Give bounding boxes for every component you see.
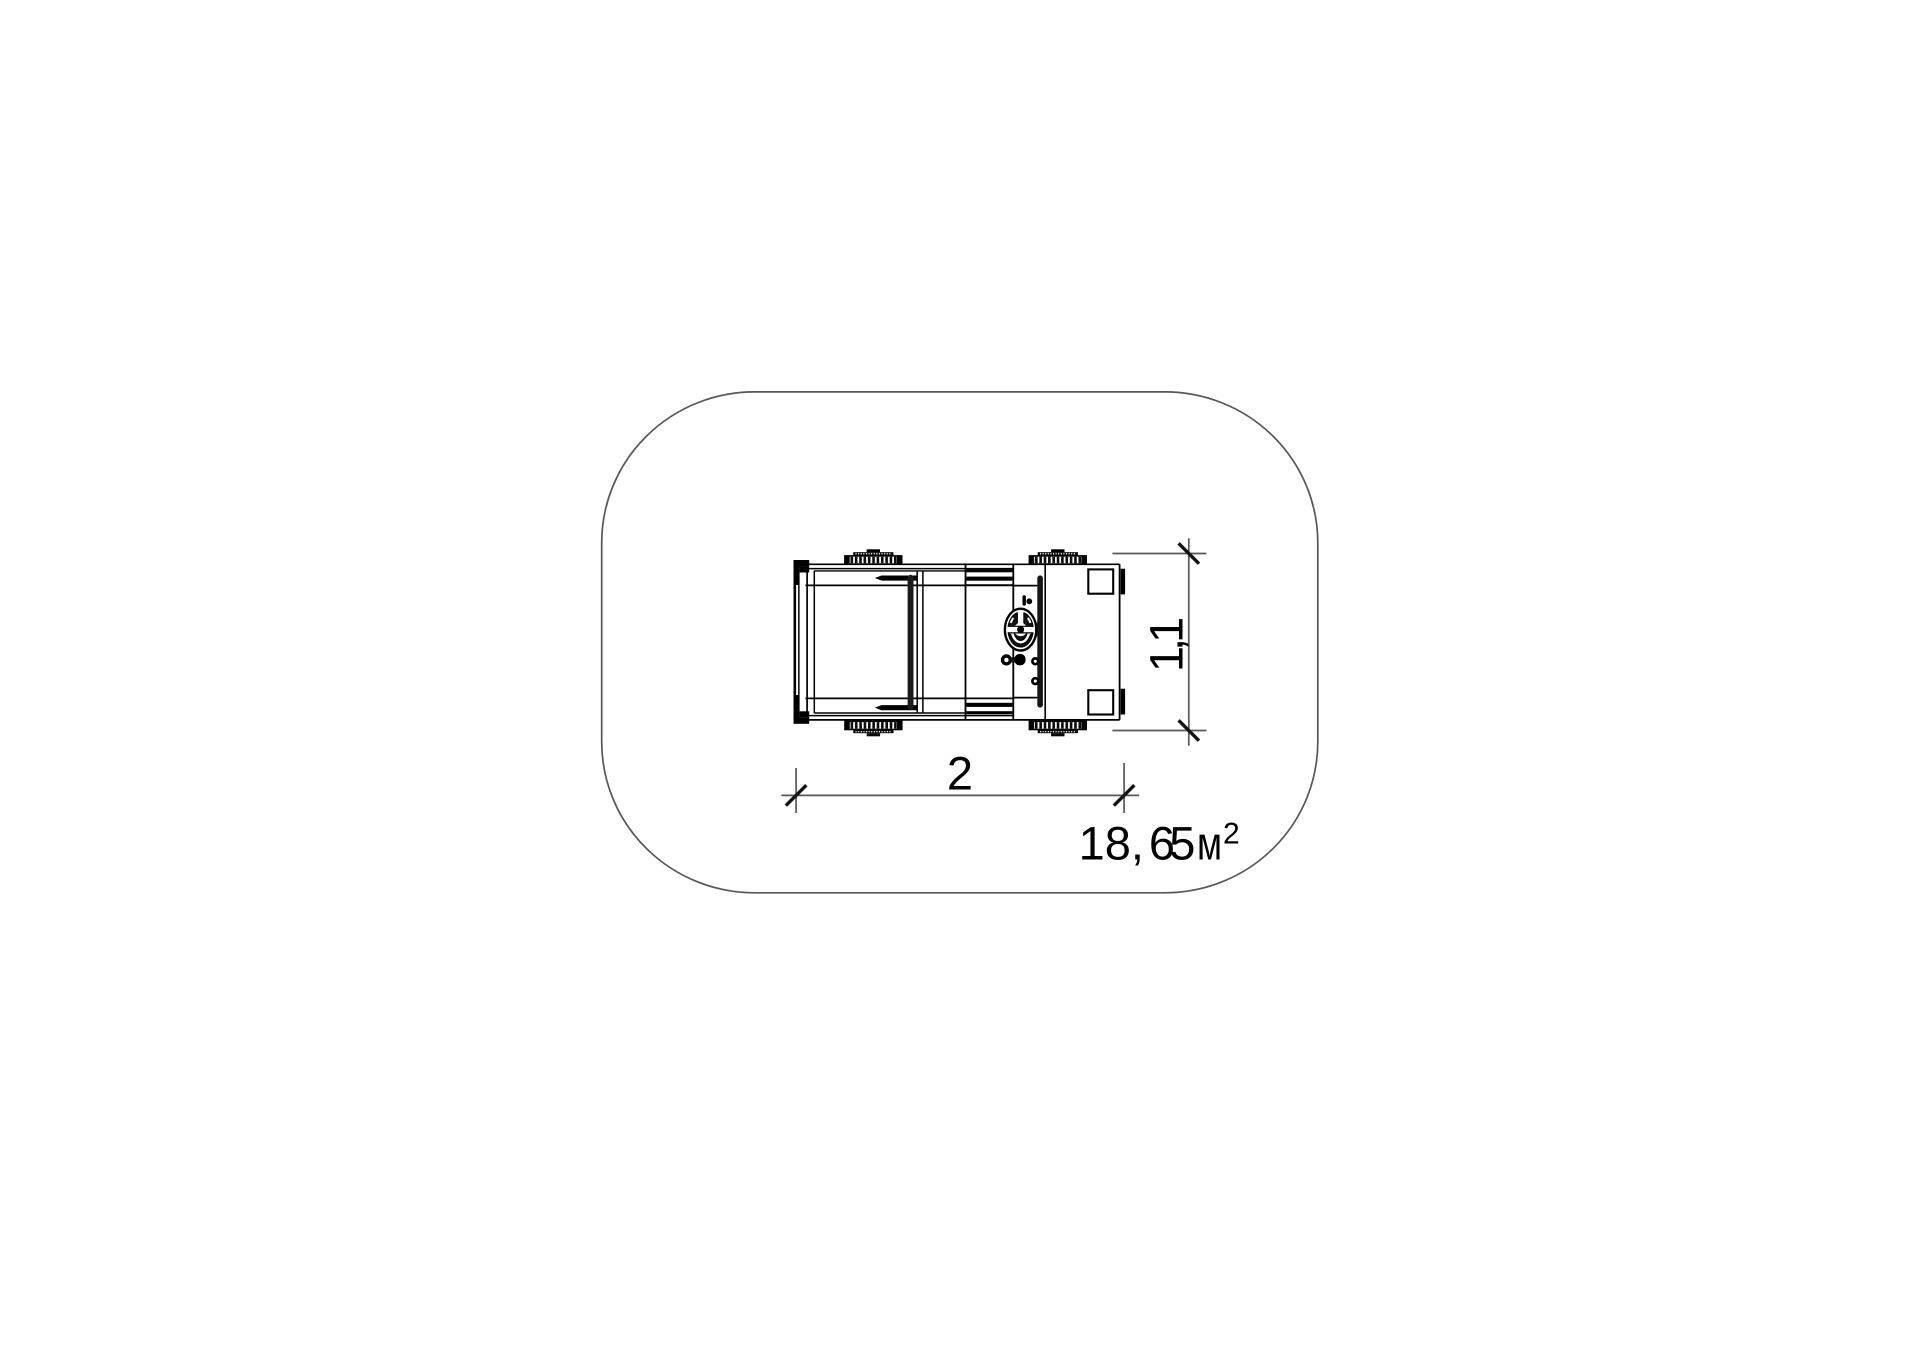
svg-text:2: 2 <box>1223 818 1240 851</box>
svg-text:2: 2 <box>947 747 973 800</box>
svg-text:м: м <box>1197 817 1222 870</box>
svg-text:18,: 18, <box>1079 817 1144 870</box>
svg-text:5: 5 <box>1169 817 1195 870</box>
svg-text:1,1: 1,1 <box>1139 619 1192 672</box>
